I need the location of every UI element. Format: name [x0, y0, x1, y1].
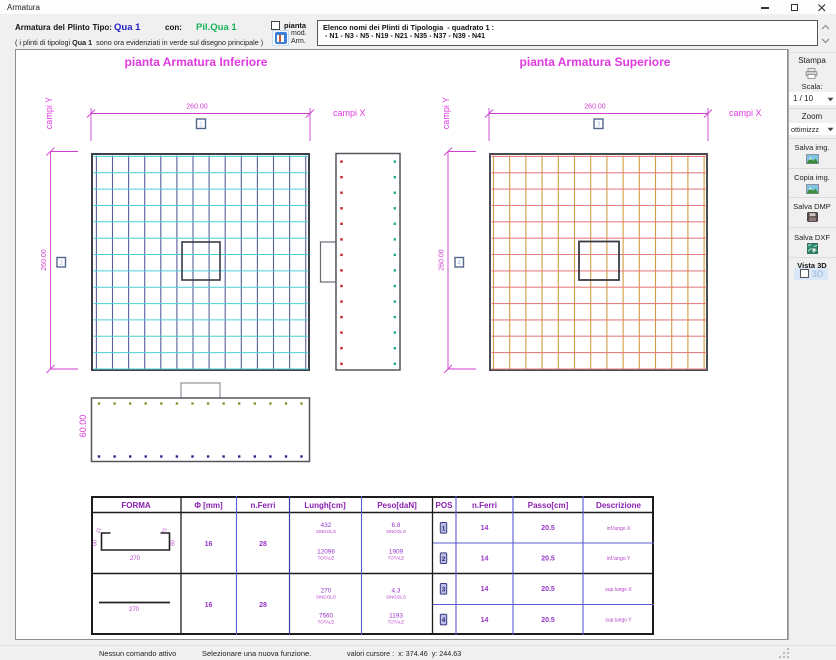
- svg-text:Passo[cm]: Passo[cm]: [528, 501, 569, 510]
- svg-text:TOTALE: TOTALE: [318, 619, 335, 624]
- svg-text:14: 14: [481, 556, 489, 563]
- svg-text:pianta Armatura Inferiore: pianta Armatura Inferiore: [125, 55, 268, 69]
- svg-text:20.5: 20.5: [541, 586, 555, 593]
- svg-text:pianta Armatura Superiore: pianta Armatura Superiore: [520, 55, 671, 69]
- svg-text:SINGOLO: SINGOLO: [316, 529, 337, 534]
- svg-text:16: 16: [205, 602, 213, 609]
- svg-text:SINGOLO: SINGOLO: [386, 529, 407, 534]
- svg-text:n.Ferri: n.Ferri: [251, 501, 276, 510]
- svg-text:20.5: 20.5: [541, 556, 555, 563]
- svg-text:POS: POS: [436, 501, 454, 510]
- svg-text:inf.lungo Y: inf.lungo Y: [607, 556, 631, 562]
- svg-text:60: 60: [171, 540, 177, 546]
- svg-text:1: 1: [442, 525, 446, 532]
- svg-text:20.5: 20.5: [541, 525, 555, 532]
- svg-text:260.00: 260.00: [439, 249, 446, 271]
- svg-text:14: 14: [481, 586, 489, 593]
- svg-text:sup.lungo Y: sup.lungo Y: [605, 618, 632, 624]
- svg-text:SINGOLO: SINGOLO: [386, 594, 407, 599]
- svg-text:inf.lungo X: inf.lungo X: [607, 526, 631, 532]
- svg-text:60.00: 60.00: [78, 415, 88, 438]
- svg-text:sup.lungo X: sup.lungo X: [605, 587, 632, 593]
- svg-text:Lungh[cm]: Lungh[cm]: [304, 501, 346, 510]
- svg-text:3: 3: [597, 122, 601, 129]
- svg-text:260.00: 260.00: [186, 104, 208, 111]
- svg-text:SINGOLO: SINGOLO: [316, 594, 337, 599]
- svg-text:1: 1: [199, 122, 203, 129]
- svg-text:4: 4: [457, 260, 461, 267]
- svg-text:2: 2: [59, 260, 63, 267]
- svg-text:Peso[daN]: Peso[daN]: [377, 501, 417, 510]
- svg-text:14: 14: [481, 525, 489, 532]
- svg-text:n.Ferri: n.Ferri: [472, 501, 497, 510]
- svg-text:20.5: 20.5: [541, 617, 555, 624]
- svg-text:TOTALE: TOTALE: [388, 555, 405, 560]
- svg-text:270: 270: [129, 607, 140, 613]
- svg-text:Descrizione: Descrizione: [596, 501, 641, 510]
- svg-text:270: 270: [130, 556, 141, 562]
- svg-text:28: 28: [259, 541, 267, 548]
- svg-text:FORMA: FORMA: [121, 501, 151, 510]
- svg-text:260.00: 260.00: [41, 249, 48, 271]
- svg-text:campi X: campi X: [729, 108, 762, 118]
- svg-text:TOTALE: TOTALE: [388, 619, 405, 624]
- svg-text:2: 2: [442, 556, 446, 563]
- svg-text:Φ [mm]: Φ [mm]: [194, 501, 223, 510]
- svg-text:campi Y: campi Y: [44, 97, 54, 129]
- svg-text:TOTALE: TOTALE: [318, 555, 335, 560]
- svg-text:260.00: 260.00: [584, 104, 606, 111]
- svg-text:14: 14: [481, 617, 489, 624]
- svg-text:campi Y: campi Y: [441, 97, 451, 129]
- svg-text:campi X: campi X: [333, 108, 366, 118]
- svg-text:28: 28: [259, 602, 267, 609]
- svg-text:60: 60: [93, 540, 99, 546]
- svg-text:16: 16: [205, 541, 213, 548]
- svg-text:4: 4: [442, 617, 446, 624]
- svg-text:3: 3: [442, 586, 446, 593]
